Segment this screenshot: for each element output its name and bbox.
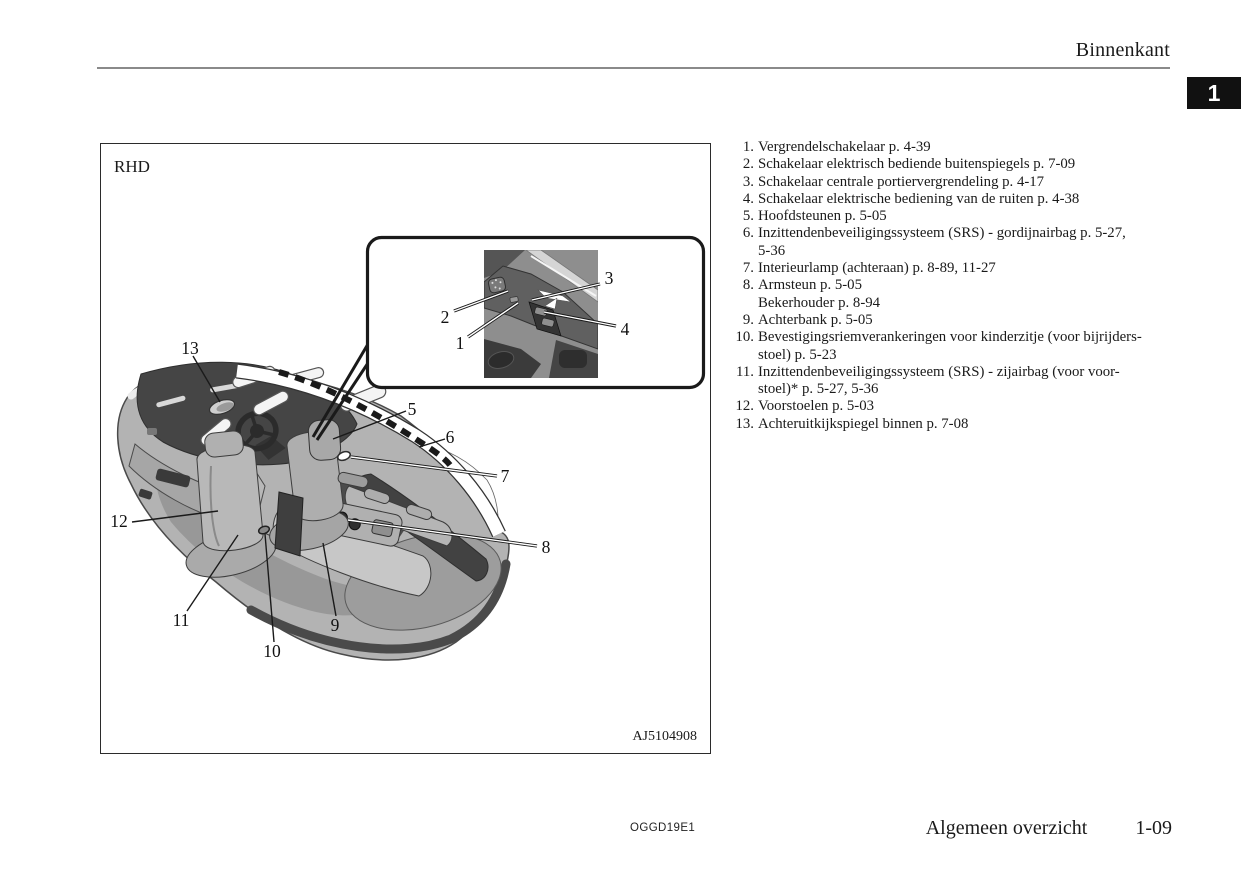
legend-item-text: Achterbank p. 5-05: [758, 312, 873, 329]
header-rule: [97, 67, 1170, 69]
legend-item: 5.Hoofdsteunen p. 5-05: [728, 208, 1206, 225]
legend-item: 8.Armsteun p. 5-05Bekerhouder p. 8-94: [728, 277, 1206, 312]
legend-item-text: stoel) p. 5-23: [758, 347, 1142, 364]
footer-chapter-title: Algemeen overzicht: [926, 817, 1088, 840]
legend-item-number: 5.: [728, 208, 754, 225]
legend-item: 6.Inzittendenbeveiligingssysteem (SRS) -…: [728, 225, 1206, 260]
legend-item-text: Hoofdsteunen p. 5-05: [758, 208, 887, 225]
legend-item: 10.Bevestigingsriemverankeringen voor ki…: [728, 329, 1206, 364]
legend-item: 13.Achteruitkijkspiegel binnen p. 7-08: [728, 416, 1206, 433]
legend-item: 2.Schakelaar elektrisch bediende buitens…: [728, 156, 1206, 173]
legend-item-text: Schakelaar centrale portiervergrendeling…: [758, 174, 1044, 191]
footer-page-number: 1-09: [1135, 817, 1172, 840]
legend-item-number: 13.: [728, 416, 754, 433]
callout-1: 1: [456, 333, 465, 353]
legend-item: 7.Interieurlamp (achteraan) p. 8-89, 11-…: [728, 260, 1206, 277]
legend-list: 1.Vergrendelschakelaar p. 4-39 2.Schakel…: [728, 139, 1206, 433]
callout-11: 11: [173, 610, 190, 630]
legend-item-text: Armsteun p. 5-05: [758, 277, 880, 294]
legend-item-number: 2.: [728, 156, 754, 173]
seat-side-console: [275, 492, 303, 556]
section-title: Binnenkant: [1076, 39, 1170, 62]
legend-item-number: 11.: [728, 364, 754, 399]
legend-item: 1.Vergrendelschakelaar p. 4-39: [728, 139, 1206, 156]
legend-item-number: 1.: [728, 139, 754, 156]
legend-item: 12.Voorstoelen p. 5-03: [728, 398, 1206, 415]
car-interior-illustration: 1 2 3 4 5 6 7 8 9 10 11 12 13: [101, 144, 710, 753]
legend-item-text: Schakelaar elektrische bediening van de …: [758, 191, 1079, 208]
callout-5: 5: [408, 399, 417, 419]
legend-item-text: stoel)* p. 5-27, 5-36: [758, 381, 1120, 398]
legend-item-number: 4.: [728, 191, 754, 208]
callout-6: 6: [446, 427, 455, 447]
figure-box: 1 2 3 4 5 6 7 8 9 10 11 12 13 RHD AJ5104…: [100, 143, 711, 754]
legend-item-text: Vergrendelschakelaar p. 4-39: [758, 139, 931, 156]
drive-layout-label: RHD: [114, 157, 150, 177]
legend-item-text: Inzittendenbeveiligingssysteem (SRS) - z…: [758, 364, 1120, 381]
legend-item-text: Bevestigingsriemverankeringen voor kinde…: [758, 329, 1142, 346]
legend-item-number: 6.: [728, 225, 754, 260]
legend-item-text: Voorstoelen p. 5-03: [758, 398, 874, 415]
callout-4: 4: [621, 319, 630, 339]
legend-item-number: 10.: [728, 329, 754, 364]
legend-item-text: Bekerhouder p. 8-94: [758, 295, 880, 312]
legend-item-number: 3.: [728, 174, 754, 191]
legend-item-text: Schakelaar elektrisch bediende buitenspi…: [758, 156, 1075, 173]
legend-item-text: Achteruitkijkspiegel binnen p. 7-08: [758, 416, 968, 433]
callout-7: 7: [501, 466, 510, 486]
figure-code: AJ5104908: [632, 729, 697, 745]
legend-item-text: Interieurlamp (achteraan) p. 8-89, 11-27: [758, 260, 996, 277]
legend-item-text: Inzittendenbeveiligingssysteem (SRS) - g…: [758, 225, 1126, 242]
callout-12: 12: [110, 511, 128, 531]
chapter-tab: 1: [1187, 77, 1241, 109]
legend-item: 11.Inzittendenbeveiligingssysteem (SRS) …: [728, 364, 1206, 399]
callout-10: 10: [263, 641, 281, 661]
footer: Algemeen overzicht 1-09: [926, 817, 1172, 840]
legend-item-text: 5-36: [758, 243, 1126, 260]
legend-item: 3.Schakelaar centrale portiervergrendeli…: [728, 174, 1206, 191]
chapter-tab-number: 1: [1208, 80, 1221, 107]
legend-item: 4.Schakelaar elektrische bediening van d…: [728, 191, 1206, 208]
callout-3: 3: [605, 268, 614, 288]
callout-2: 2: [441, 307, 450, 327]
manual-page: { "page": { "header": { "section_title":…: [0, 0, 1241, 875]
legend-item: 9.Achterbank p. 5-05: [728, 312, 1206, 329]
legend-item-number: 9.: [728, 312, 754, 329]
callout-9: 9: [331, 615, 340, 635]
callout-13: 13: [181, 338, 199, 358]
legend-item-number: 7.: [728, 260, 754, 277]
legend-item-number: 8.: [728, 277, 754, 312]
callout-8: 8: [542, 537, 551, 557]
document-code: OGGD19E1: [630, 822, 695, 834]
legend-item-number: 12.: [728, 398, 754, 415]
